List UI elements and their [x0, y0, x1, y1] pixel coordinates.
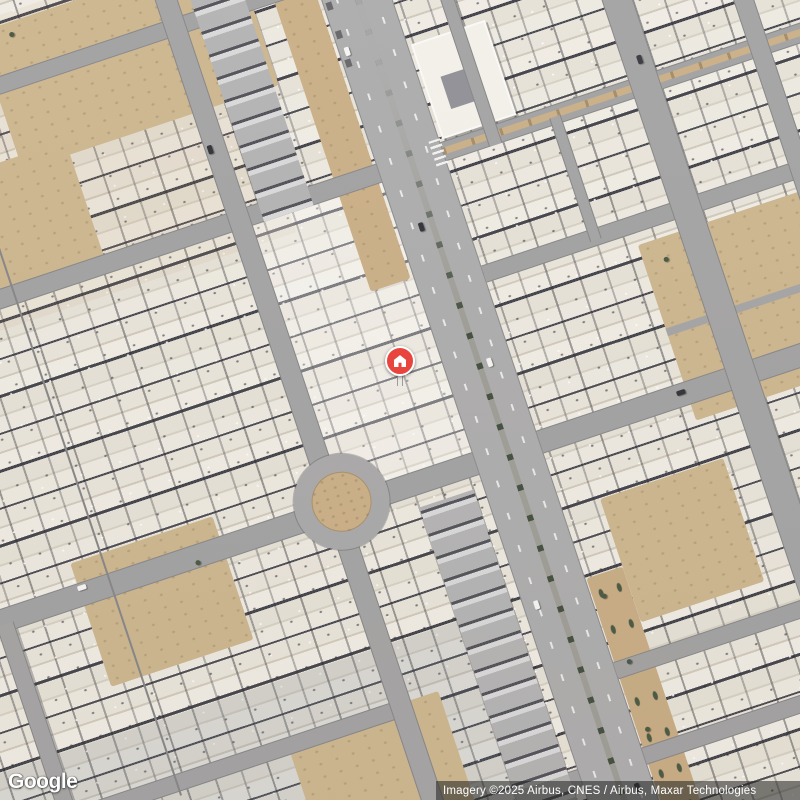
attribution-text: Imagery ©2025 Airbus, CNES / Airbus, Max…	[443, 785, 756, 797]
imagery-attribution: Imagery ©2025 Airbus, CNES / Airbus, Max…	[436, 781, 800, 800]
home-place-marker[interactable]	[385, 346, 415, 388]
satellite-map-canvas[interactable]: Google Imagery ©2025 Airbus, CNES / Airb…	[0, 0, 800, 800]
google-logo[interactable]: Google	[8, 770, 77, 794]
map-rotated-layer	[0, 0, 800, 800]
roundabout-center-island	[304, 464, 380, 540]
marker-circle	[385, 346, 415, 376]
home-icon	[392, 353, 408, 369]
